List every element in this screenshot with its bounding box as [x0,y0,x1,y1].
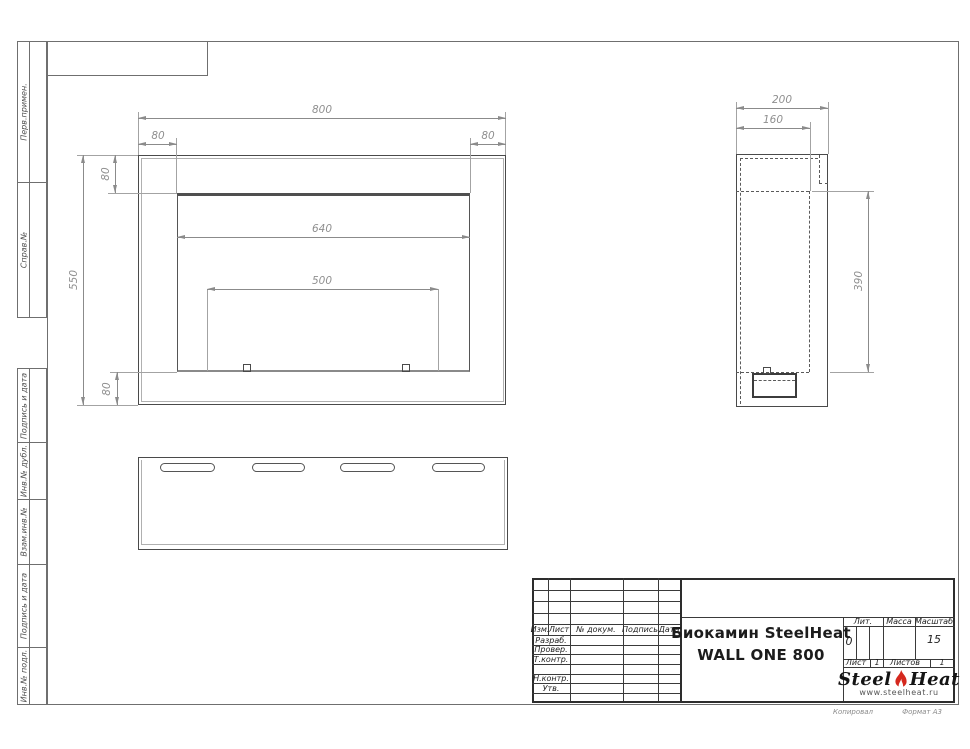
dim-opening-width-label: 640 [312,223,332,235]
tb-row-razrab: Разраб. [535,636,566,645]
hidden-line [819,155,820,183]
dim-side-opening-height-label: 390 [853,271,865,291]
sidebar-divider [29,443,30,499]
extension-line [828,102,829,154]
sidebar-label: Подпись и дата [20,372,29,438]
title-block-line [930,659,931,667]
tb-col-list: Лист [549,625,569,634]
title-block-border [532,701,955,703]
bottom-view-edge-line [504,460,505,544]
extension-line [470,138,471,193]
tb-lit-label: Лит. [854,617,872,626]
tb-col-sign: Подпись [622,625,658,634]
extension-line [110,372,177,373]
sidebar-cell-inv-podl: Инв.№ подл. [17,647,47,705]
dim-front-width-label: 800 [312,104,332,116]
extension-line [108,193,177,194]
vent-slot [160,463,215,472]
side-burner-box [752,373,797,398]
dim-burner-width-line [207,289,438,290]
extension-line [77,405,138,406]
steelheat-logo: Steel Heat www.steelheat.ru [843,667,955,701]
document-name-line2: WALL ONE 800 [697,646,825,664]
hidden-line [809,191,810,372]
sidebar-divider [29,42,30,182]
dim-side-inner-depth-label: 160 [763,114,783,126]
title-block-line [623,578,624,701]
extension-line [438,289,439,371]
sidebar-cell-perv-primen: Перв.примен. [17,41,47,183]
footer-copy-label: Копировал [833,708,873,716]
dim-opening-width-line [177,237,470,238]
burner-tab-right [402,364,410,372]
vent-slot [252,463,305,472]
extension-line [810,122,811,191]
tb-row-tkontr: Т.контр. [534,655,569,664]
front-view-edge-line [141,158,503,159]
sidebar-cell-inv-dubl: Инв.№ дубл. [17,442,47,500]
tb-row-prover: Провер. [534,645,567,654]
title-block-line [658,578,659,701]
dim-front-inset-bottom-line [117,372,118,405]
sidebar-label: Справ.№ [20,232,29,268]
front-view-edge-line [141,401,503,402]
hidden-line [740,158,818,159]
sidebar-label: Взам.инв.№ [20,507,29,556]
logo-url-text: www.steelheat.ru [843,688,955,697]
sidebar-label: Подпись и дата [20,573,29,639]
dim-burner-width-label: 500 [312,275,332,287]
extension-line [176,138,177,193]
front-view-edge-line [141,158,142,402]
logo-heat-text: Heat [910,669,960,690]
dim-front-inset-left-line [138,144,177,145]
tb-sheets-label: Листов [890,658,920,667]
hidden-line [736,191,809,192]
tb-col-doc: № докум. [576,625,615,634]
burner-tab-left [243,364,251,372]
dim-front-height-label: 550 [68,270,80,290]
sidebar-cell-podpis-data-1: Подпись и дата [17,368,47,443]
dim-side-depth-line [736,108,828,109]
dim-front-inset-top-label: 80 [100,167,112,180]
drawing-sheet: Перв.примен. Справ.№ Подпись и дата Инв.… [0,0,970,749]
frame-top-stamp-box [47,41,208,76]
dim-front-inset-top-line [115,155,116,193]
flame-icon [894,670,908,689]
tb-row-nkontr: Н.контр. [533,674,569,683]
sidebar-divider [29,369,30,442]
tb-massa-label: Масса [886,617,912,626]
title-block-line [883,617,884,667]
tb-sheet-value: 1 [874,658,879,667]
dim-front-height-line [83,155,84,405]
dim-front-width-line [138,118,506,119]
dim-side-inner-depth-line [736,128,810,129]
title-block-line [680,617,955,618]
extension-line [77,155,138,156]
tb-sheet-label: Лист [846,658,866,667]
tb-col-izm: Изм. [531,625,550,634]
extension-line [830,372,874,373]
tb-sheets-value: 1 [939,658,944,667]
tb-lit-value: 0 [846,635,853,648]
tb-scale-value: 15 [927,633,941,646]
front-view-edge-line [503,158,504,402]
dim-front-inset-right-label: 80 [481,130,494,142]
sidebar-divider [29,648,30,704]
hidden-line [819,183,828,184]
side-burner-tab [763,367,771,374]
hidden-line [740,158,741,404]
title-block-line [843,626,955,627]
sidebar-divider [29,565,30,647]
sidebar-label: Перв.примен. [20,83,29,141]
sidebar-divider [29,500,30,564]
bottom-view-edge-line [141,544,505,545]
document-name-line1: Биокамин SteelHeat [671,624,851,642]
dim-side-opening-height-line [868,191,869,372]
extension-line [207,289,208,371]
tb-row-utv: Утв. [543,684,560,693]
hidden-line [754,380,795,381]
footer-format-label: Формат А3 [902,708,942,716]
dim-front-inset-bottom-label: 80 [101,382,113,395]
dim-front-inset-left-label: 80 [151,130,164,142]
sidebar-cell-vzam-inv: Взам.инв.№ [17,499,47,565]
title-block: Изм. Лист № докум. Подпись Дата Разраб. … [532,578,955,703]
sidebar-cell-sprav-no: Справ.№ [17,182,47,318]
sidebar-divider [29,183,30,317]
title-block-border [532,578,534,703]
sidebar-cell-podpis-data-2: Подпись и дата [17,564,47,648]
dim-side-depth-label: 200 [772,94,792,106]
tb-scale-label: Масштаб [915,617,953,626]
title-block-border [532,578,955,580]
extension-line [812,191,874,192]
sidebar-label: Инв.№ подл. [20,650,29,703]
bottom-view-edge-line [141,460,142,544]
title-block-line [570,578,571,701]
vent-slot [340,463,395,472]
sidebar-label: Инв.№ дубл. [20,445,29,497]
vent-slot [432,463,485,472]
title-block-line [869,626,870,659]
logo-steel-text: Steel [838,669,892,690]
title-block-line [870,659,871,667]
title-block-line [856,626,857,659]
dim-front-inset-right-line [470,144,506,145]
